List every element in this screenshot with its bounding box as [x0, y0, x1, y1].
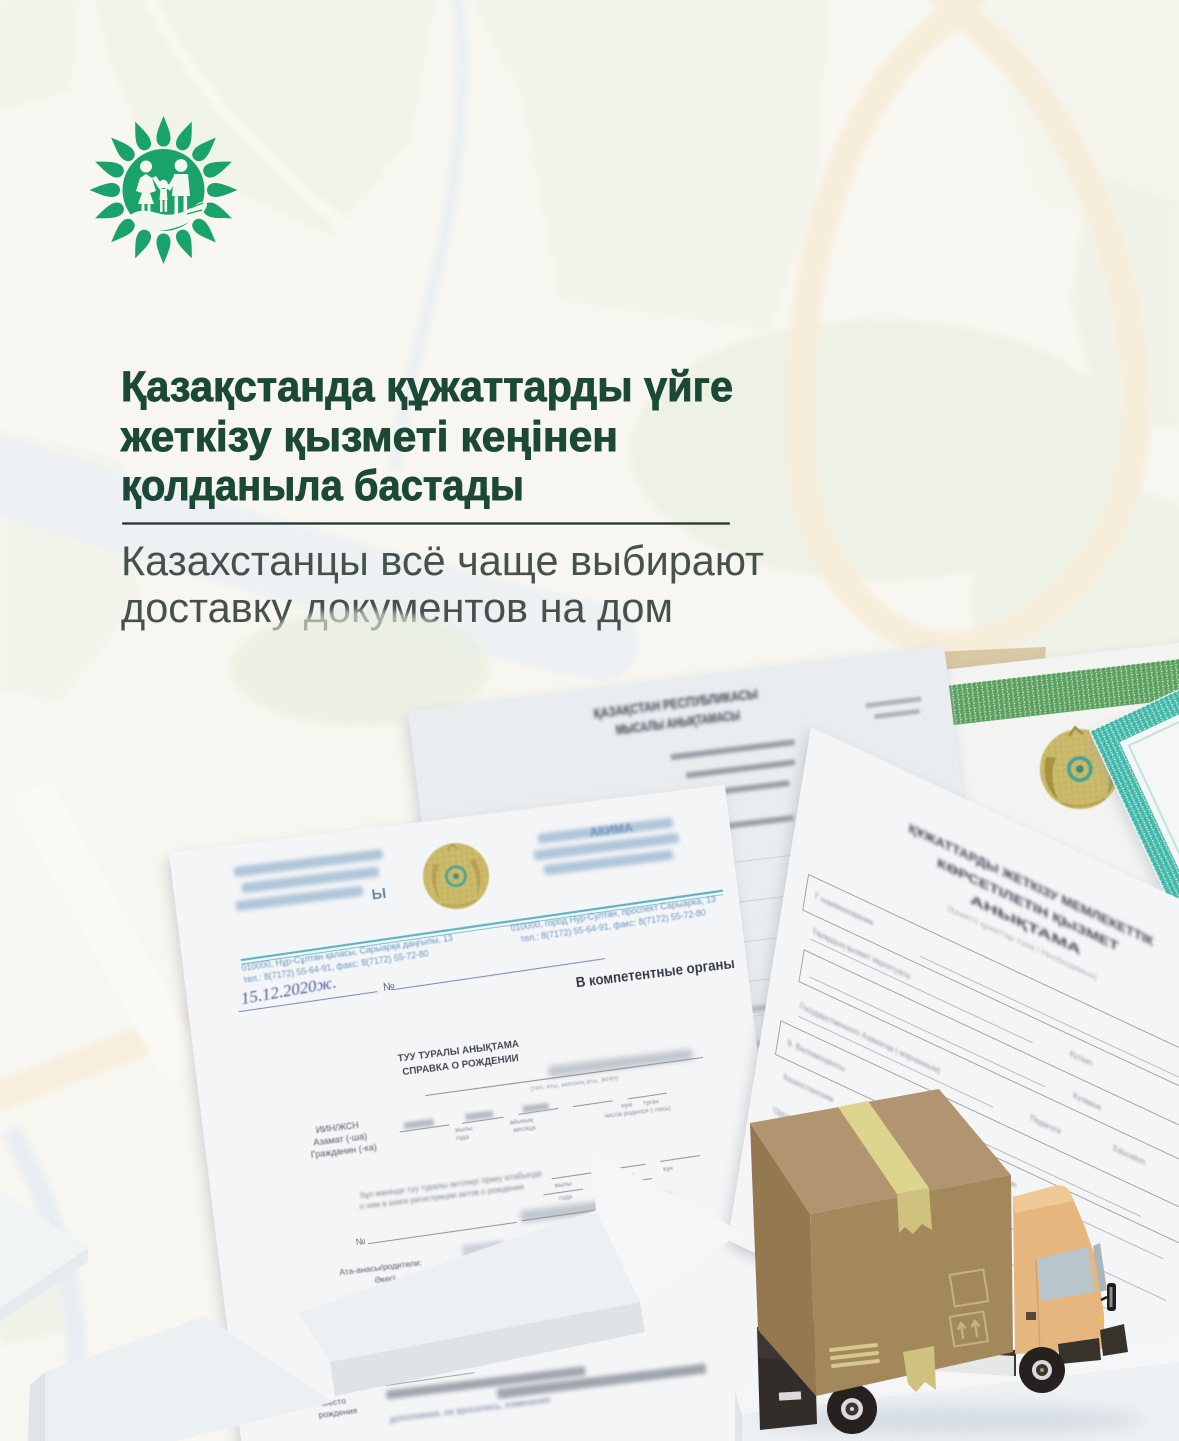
svg-text:жеткізу қызметі кеңінен: жеткізу қызметі кеңінен [120, 413, 618, 461]
svg-text:күн: күн [663, 1165, 674, 1173]
svg-text:№: № [382, 981, 395, 994]
svg-text:Казахстанцы всё чаще выбирают: Казахстанцы всё чаще выбирают [121, 537, 764, 584]
svg-text:№: № [355, 1236, 366, 1247]
svg-text:Ы: Ы [371, 885, 388, 904]
svg-text:күні: күні [621, 1100, 633, 1109]
svg-text:Қазақстанда құжаттарды үйге: Қазақстанда құжаттарды үйге [121, 363, 733, 411]
svg-text:қолданыла бастады: қолданыла бастады [121, 462, 524, 510]
